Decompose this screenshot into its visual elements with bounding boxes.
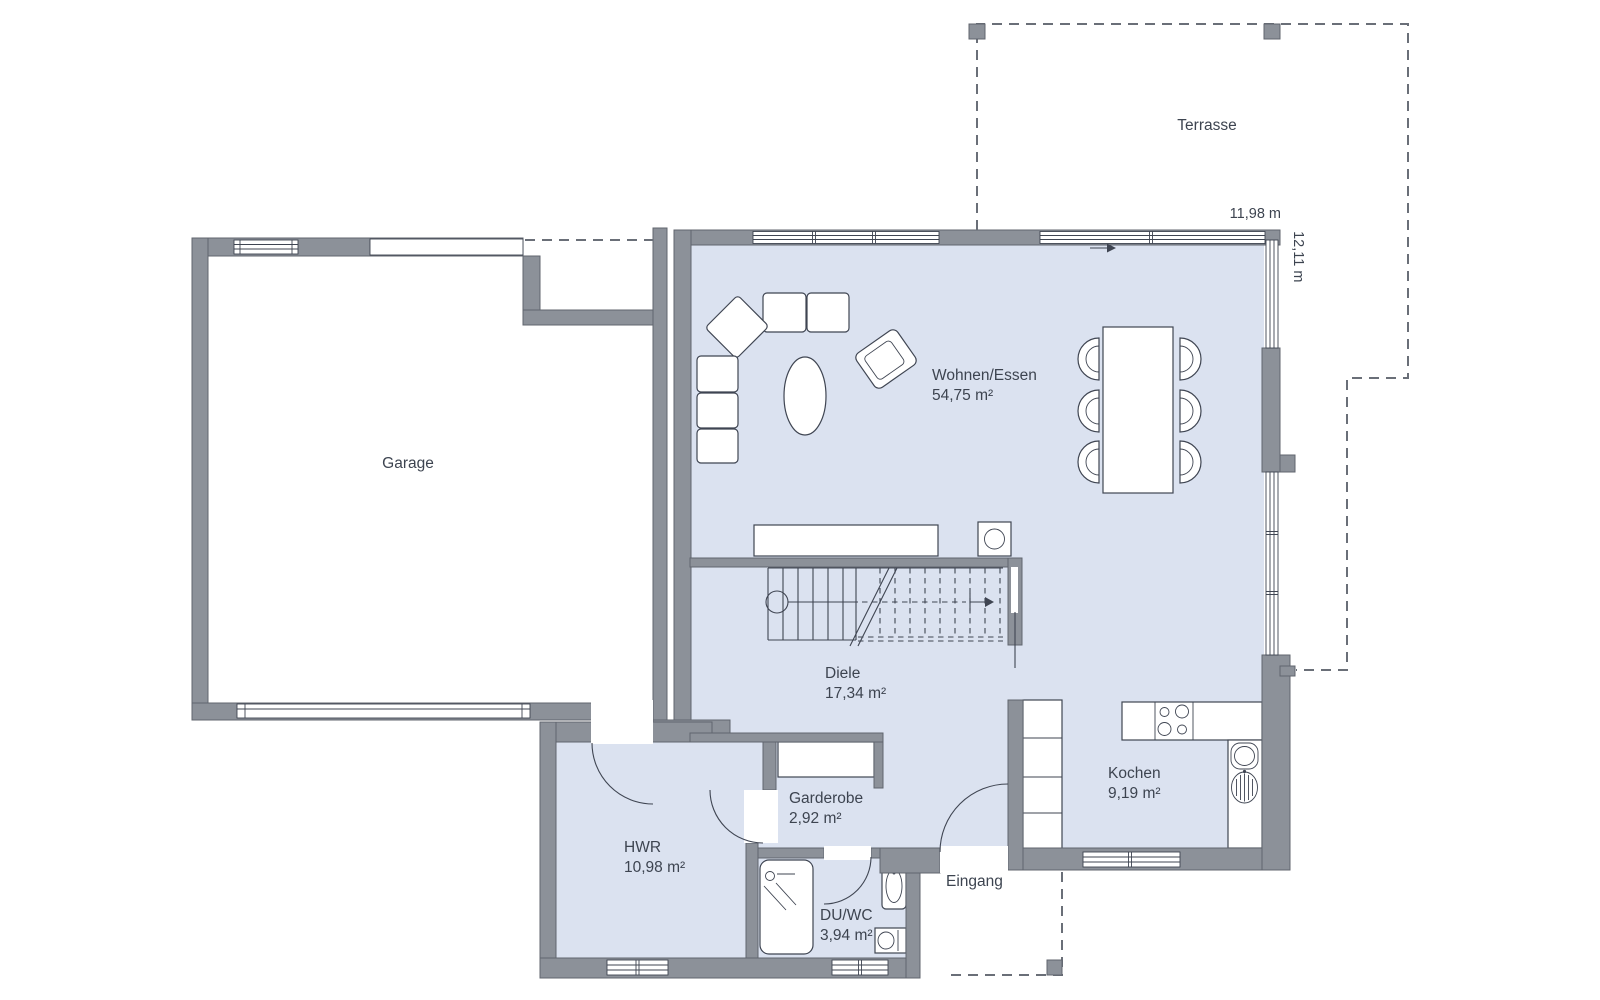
kitchen-counter	[1122, 702, 1262, 740]
dimension-width: 11,98 m	[1151, 205, 1281, 225]
entrance-post	[1047, 960, 1062, 975]
garage-opening-north	[370, 239, 523, 255]
garage-door-south	[237, 704, 530, 718]
dining-table	[1103, 327, 1173, 493]
terrace-sliding-window-north	[1040, 232, 1265, 244]
toilet	[875, 928, 906, 953]
duwc-window-south	[832, 960, 888, 975]
room-label-kochen: Kochen 9,19 m²	[1108, 764, 1161, 803]
wardrobe	[778, 742, 874, 777]
shower	[760, 860, 813, 954]
dining-furniture	[1078, 327, 1201, 493]
kitchen-window-south	[1083, 852, 1180, 867]
room-label-hwr: HWR 10,98 m²	[624, 838, 685, 877]
terrace-post-left	[969, 24, 985, 39]
room-label-eingang: Eingang	[946, 872, 1003, 892]
wood-stove	[978, 522, 1011, 556]
hwr-window-south	[607, 960, 668, 975]
coffee-table	[784, 357, 826, 435]
living-room-window-north	[753, 232, 939, 244]
room-label-wohnen-essen: Wohnen/Essen 54,75 m²	[932, 366, 1037, 405]
dining-window-east	[1266, 472, 1278, 655]
corner-window-east	[1266, 240, 1278, 348]
room-label-diele: Diele 17,34 m²	[825, 664, 886, 703]
sideboard	[754, 525, 938, 556]
floor-plan: Garage Terrasse Wohnen/Essen 54,75 m² Di…	[0, 0, 1600, 1000]
room-label-garderobe: Garderobe 2,92 m²	[789, 789, 863, 828]
tall-cabinet	[1023, 700, 1062, 850]
terrace-post-right	[1264, 24, 1280, 39]
floor-plan-drawing	[0, 0, 1600, 1000]
dimension-depth: 12,11 m	[1287, 222, 1307, 292]
garage-window-north	[234, 240, 298, 254]
room-label-du-wc: DU/WC 3,94 m²	[820, 906, 873, 945]
room-label-garage: Garage	[338, 454, 478, 474]
room-label-terrasse: Terrasse	[1137, 116, 1277, 136]
